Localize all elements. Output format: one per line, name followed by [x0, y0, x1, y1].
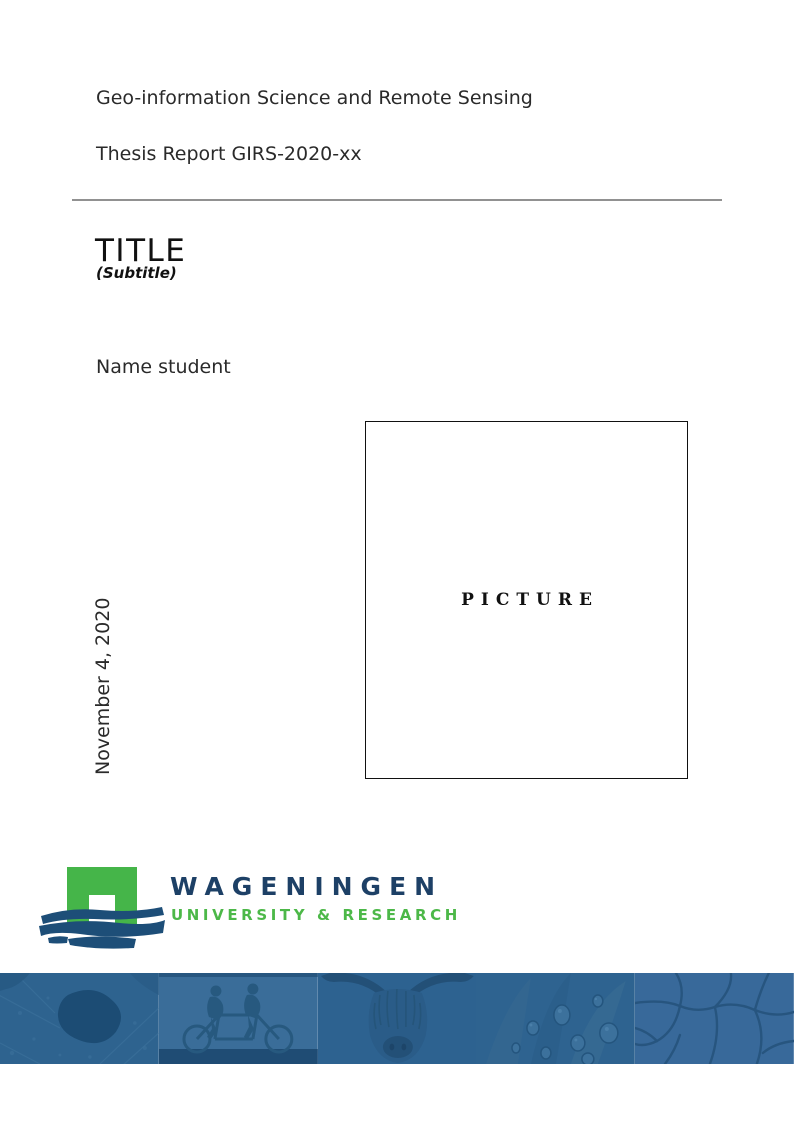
thesis-cover-page: Geo-information Science and Remote Sensi…	[0, 0, 794, 1123]
program-name: Geo-information Science and Remote Sensi…	[96, 87, 533, 109]
report-id: Thesis Report GIRS-2020-xx	[96, 143, 362, 165]
thesis-subtitle: (Subtitle)	[96, 264, 177, 282]
author-name: Name student	[96, 356, 231, 378]
leaf-droplets-image	[476, 973, 635, 1064]
wur-tagline: UNIVERSITY & RESEARCH	[171, 906, 461, 924]
photo-banner	[0, 973, 794, 1064]
aerial-map-image	[0, 973, 159, 1064]
picture-placeholder-label: PICTURE	[454, 590, 599, 610]
wur-logo: WAGENINGEN UNIVERSITY & RESEARCH	[38, 860, 468, 960]
horizontal-rule	[72, 199, 722, 201]
tandem-cyclists-image	[159, 973, 318, 1064]
picture-placeholder-box: PICTURE	[365, 421, 688, 779]
wur-arch-icon	[38, 860, 166, 960]
report-date: November 4, 2020	[92, 597, 118, 775]
highland-cow-image	[318, 973, 477, 1064]
wur-wordmark: WAGENINGEN	[170, 872, 443, 901]
cracked-earth-image	[635, 973, 794, 1064]
